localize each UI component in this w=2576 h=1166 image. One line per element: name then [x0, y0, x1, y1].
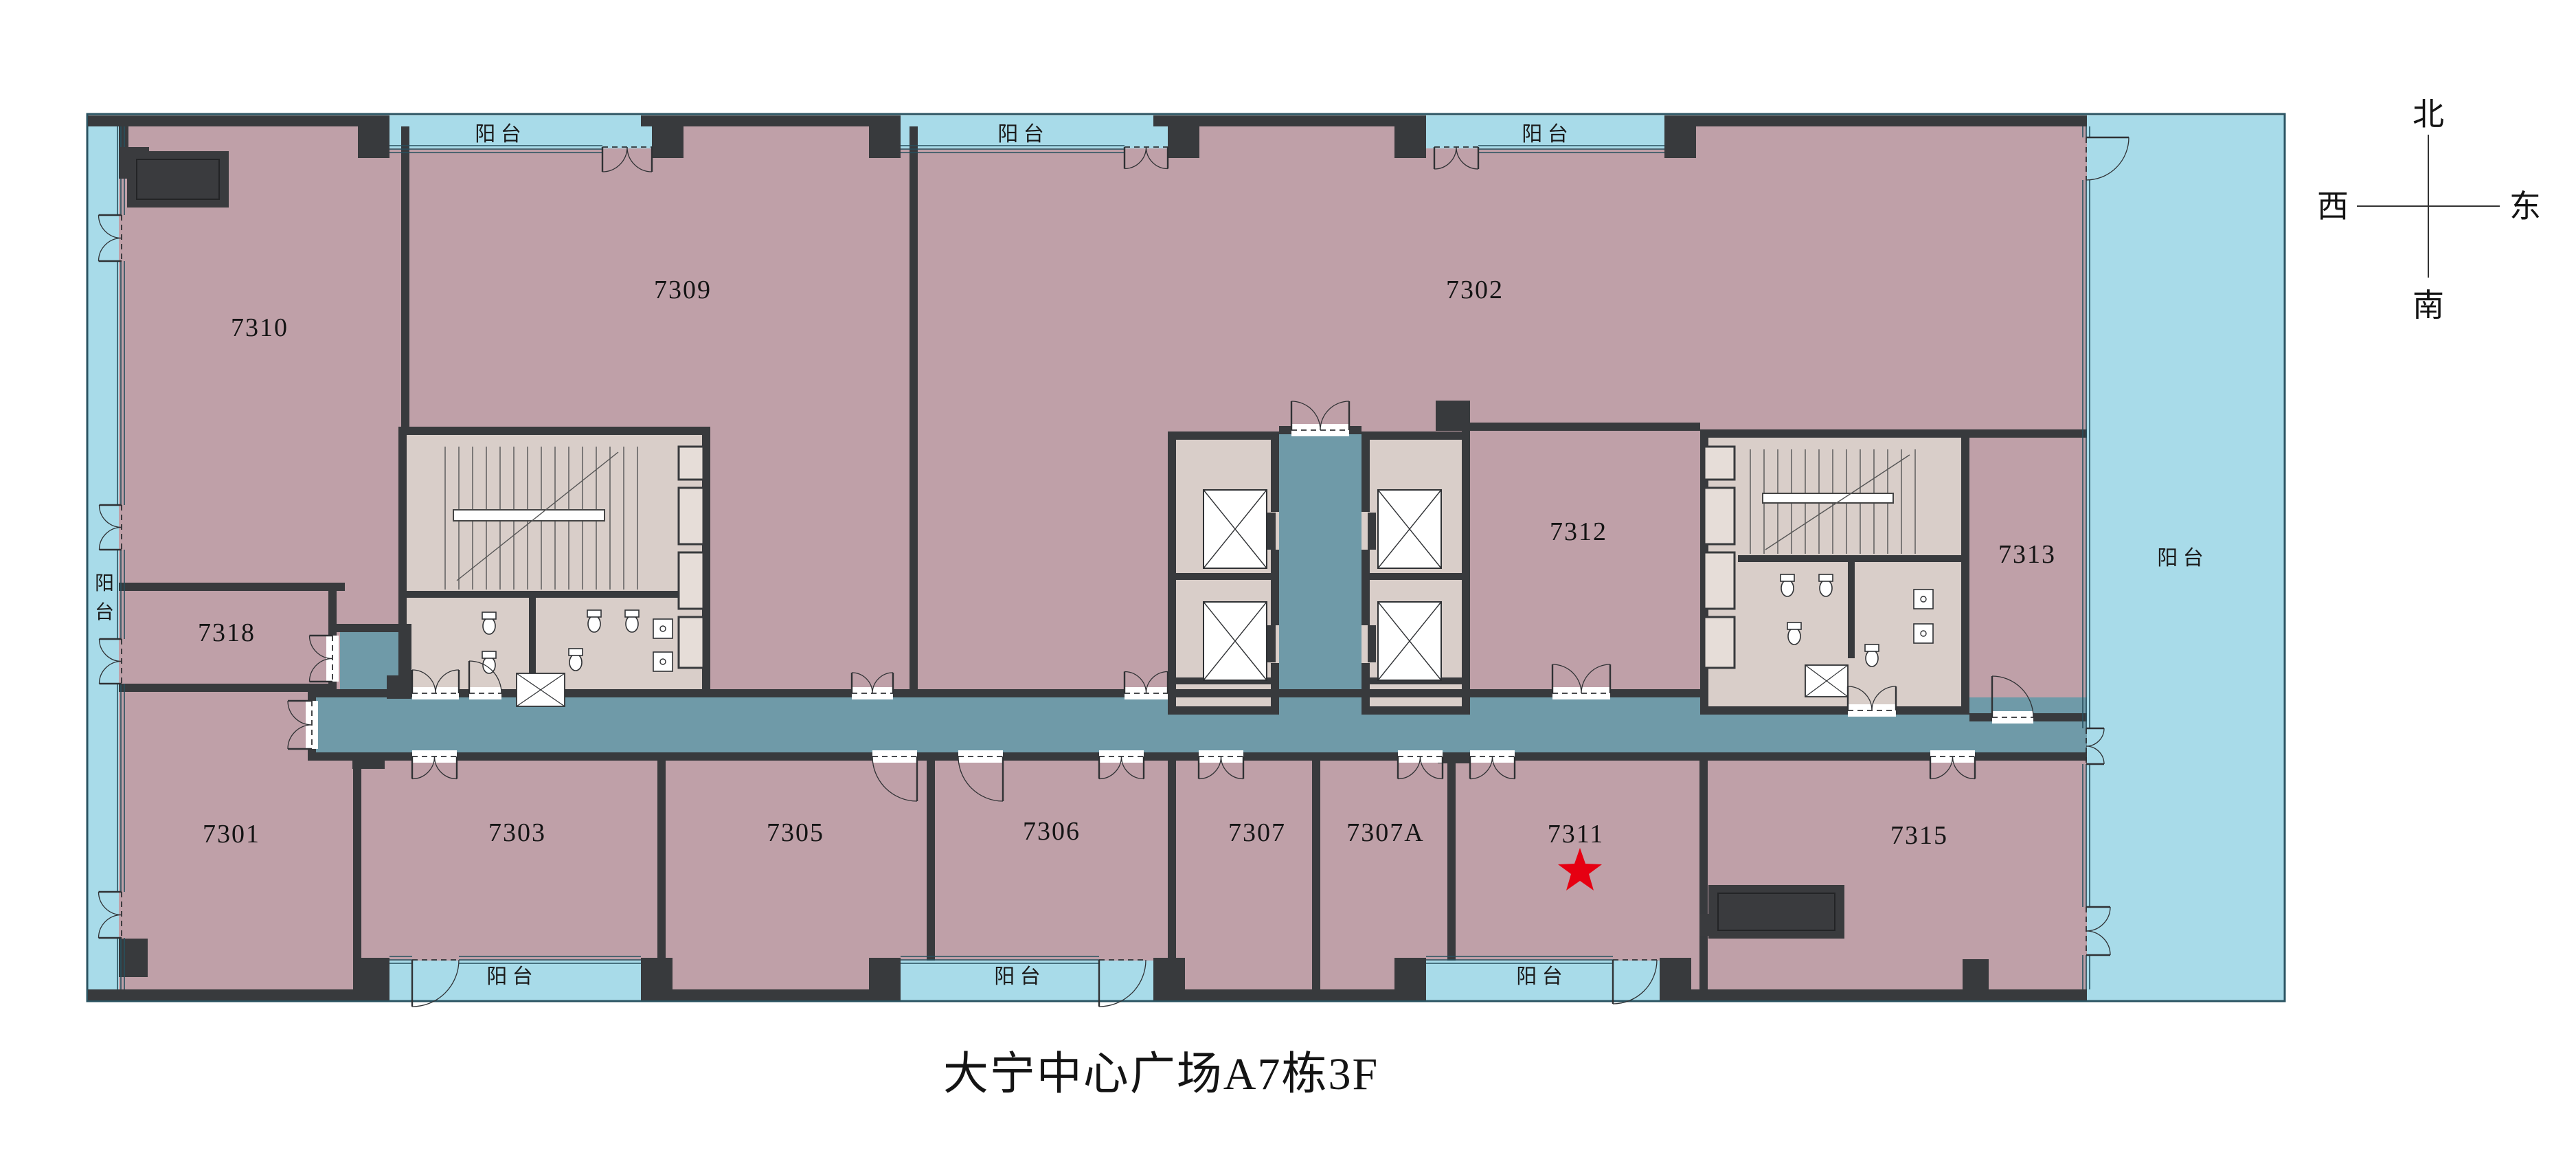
compass-south: 南 — [2413, 288, 2444, 323]
room-label-7307A: 7307A — [1346, 818, 1424, 847]
room-label-7318: 7318 — [198, 618, 256, 647]
balcony-label-bottom-2: 阳 台 — [994, 965, 1041, 988]
balcony-label-left-top-char: 阳 — [95, 573, 114, 594]
floor-plan-page: 7310 7309 7302 7318 7312 7313 7301 7303 … — [0, 0, 2576, 1166]
room-label-7302: 7302 — [1446, 276, 1504, 304]
room-label-7306: 7306 — [1023, 817, 1081, 846]
balcony-label-top-2: 阳 台 — [997, 123, 1044, 146]
corridor-elevator-lobby — [1279, 434, 1362, 697]
room-label-7301: 7301 — [203, 820, 260, 849]
room-label-7313: 7313 — [1998, 540, 2056, 569]
balcony-label-top-1: 阳 台 — [475, 123, 521, 146]
room-label-7311: 7311 — [1548, 820, 1605, 849]
balcony-label-bottom-1: 阳 台 — [486, 965, 533, 988]
compass-north: 北 — [2413, 97, 2444, 132]
room-label-7305: 7305 — [767, 818, 824, 847]
compass: 北 南 西 东 — [2317, 97, 2541, 323]
floor-plan-drawing: 7310 7309 7302 7318 7312 7313 7301 7303 … — [0, 0, 2576, 1166]
balcony-label-bottom-3: 阳 台 — [1516, 965, 1563, 988]
left-balcony — [88, 115, 119, 1000]
room-label-7309: 7309 — [654, 276, 712, 304]
compass-east: 东 — [2509, 189, 2541, 224]
balcony-label-left-bottom-char: 台 — [95, 601, 114, 623]
room-label-7315: 7315 — [1890, 821, 1948, 850]
room-label-7307: 7307 — [1228, 818, 1286, 847]
room-label-7312: 7312 — [1550, 517, 1607, 546]
balcony-label-top-3: 阳 台 — [1522, 123, 1568, 146]
balcony-label-right: 阳 台 — [2157, 547, 2204, 570]
compass-west: 西 — [2317, 189, 2349, 224]
room-label-7310: 7310 — [231, 313, 289, 342]
page-title: 大宁中心广场A7栋3F — [943, 1049, 1379, 1099]
room-label-7303: 7303 — [488, 818, 546, 847]
